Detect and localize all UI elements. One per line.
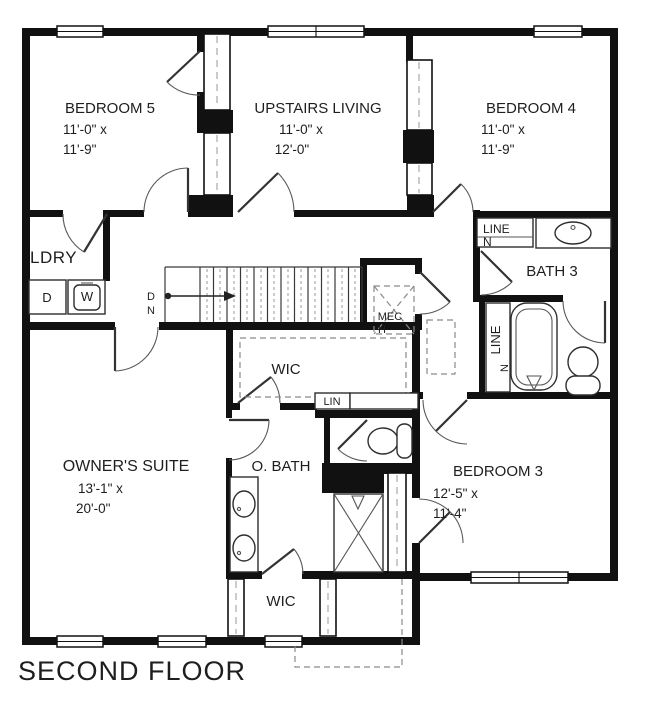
washer-label: W (81, 289, 94, 304)
svg-text:20'-0": 20'-0" (76, 501, 111, 516)
bedroom4-label: BEDROOM 4 11'-0" x 11'-9" (481, 100, 576, 157)
window (265, 636, 302, 647)
shower-icon (334, 494, 383, 572)
svg-text:LDRY: LDRY (30, 248, 77, 267)
svg-text:BEDROOM 5: BEDROOM 5 (65, 100, 155, 117)
roof-below-outline (295, 579, 402, 667)
svg-text:MEC: MEC (378, 311, 403, 323)
door-owners-bath (229, 420, 269, 460)
laundry-label: LDRY (30, 248, 77, 267)
door-bedroom3 (423, 400, 467, 444)
owners-bath-label: O. BATH (252, 458, 311, 475)
stairs-direction-label-d: D (147, 291, 155, 303)
svg-text:11'-0" x: 11'-0" x (481, 122, 525, 137)
washer-icon: W (68, 280, 105, 314)
svg-text:H: H (378, 324, 386, 336)
svg-text:BEDROOM 3: BEDROOM 3 (453, 463, 543, 480)
svg-text:WIC: WIC (271, 361, 300, 378)
wic-shelving-outline (240, 338, 406, 397)
window (471, 572, 568, 583)
window (268, 26, 364, 37)
dryer-icon: D (29, 280, 66, 314)
attic-access-outline (427, 320, 455, 374)
page-title: SECOND FLOOR (18, 656, 246, 686)
bedroom3-label: BEDROOM 3 12'-5" x 11'-4" (433, 463, 543, 521)
bath3-label: BATH 3 (526, 263, 577, 280)
dryer-label: D (42, 290, 51, 305)
svg-text:12'-0": 12'-0" (275, 142, 310, 157)
wic-hall-label: WIC (271, 361, 300, 378)
svg-text:13'-1" x: 13'-1" x (78, 481, 123, 496)
stairs: D N (147, 267, 362, 322)
door-laundry (63, 214, 107, 252)
linen-closet-upper: LINE N (477, 218, 533, 249)
bath3-sink-icon (536, 218, 611, 248)
bath3-toilet-icon (566, 347, 600, 395)
wic-owners-label: WIC (266, 593, 295, 610)
svg-text:12'-5" x: 12'-5" x (433, 486, 478, 501)
linen-closet-lower: LINE N (486, 303, 511, 392)
door-water-closet (338, 420, 367, 461)
window (534, 26, 582, 37)
svg-text:BATH 3: BATH 3 (526, 263, 577, 280)
door-upstairs-living (238, 173, 294, 212)
linen-shelf-row: LIN (315, 393, 418, 409)
double-vanity-icon (230, 477, 258, 572)
door-bedroom5-closet (167, 51, 200, 95)
svg-text:UPSTAIRS LIVING: UPSTAIRS LIVING (254, 100, 381, 117)
bedroom5-label: BEDROOM 5 11'-0" x 11'-9" (63, 100, 155, 157)
window (57, 26, 103, 37)
water-closet-toilet-icon (368, 424, 412, 458)
svg-text:OWNER'S SUITE: OWNER'S SUITE (63, 458, 190, 475)
svg-text:11'-9": 11'-9" (481, 142, 515, 157)
window (57, 636, 103, 647)
floor-plan-drawing: D N D W (0, 0, 650, 710)
door-owners-suite (115, 327, 158, 371)
door-mechanical (420, 272, 450, 314)
svg-text:11'-0" x: 11'-0" x (63, 122, 107, 137)
linen-upper-label-2: N (483, 235, 492, 249)
door-bedroom4 (433, 184, 473, 212)
svg-text:11'-4": 11'-4" (433, 506, 467, 521)
stairs-direction-label-n: N (147, 305, 155, 317)
linen-upper-label-1: LINE (483, 222, 510, 236)
upstairs-living-label: UPSTAIRS LIVING 11'-0" x 12'-0" (254, 100, 381, 157)
lin-label: LIN (323, 396, 340, 408)
linen-lower-label-2: N (499, 364, 511, 372)
door-wic-owners (262, 549, 303, 574)
owners-suite-label: OWNER'S SUITE 13'-1" x 20'-0" (63, 458, 190, 516)
svg-text:11'-0" x: 11'-0" x (279, 122, 323, 137)
svg-text:WIC: WIC (266, 593, 295, 610)
door-bath3 (481, 251, 512, 295)
door-bedroom5 (144, 168, 188, 212)
door-bath3-tub-room (563, 301, 605, 343)
svg-text:11'-9": 11'-9" (63, 142, 97, 157)
svg-text:BEDROOM 4: BEDROOM 4 (486, 100, 576, 117)
svg-text:O. BATH: O. BATH (252, 458, 311, 475)
linen-lower-label-1: LINE (488, 325, 503, 354)
window (158, 636, 206, 647)
door-wic-hall (238, 377, 280, 403)
floor-plan-page: D N D W (0, 0, 650, 710)
bathtub-icon (511, 303, 557, 390)
